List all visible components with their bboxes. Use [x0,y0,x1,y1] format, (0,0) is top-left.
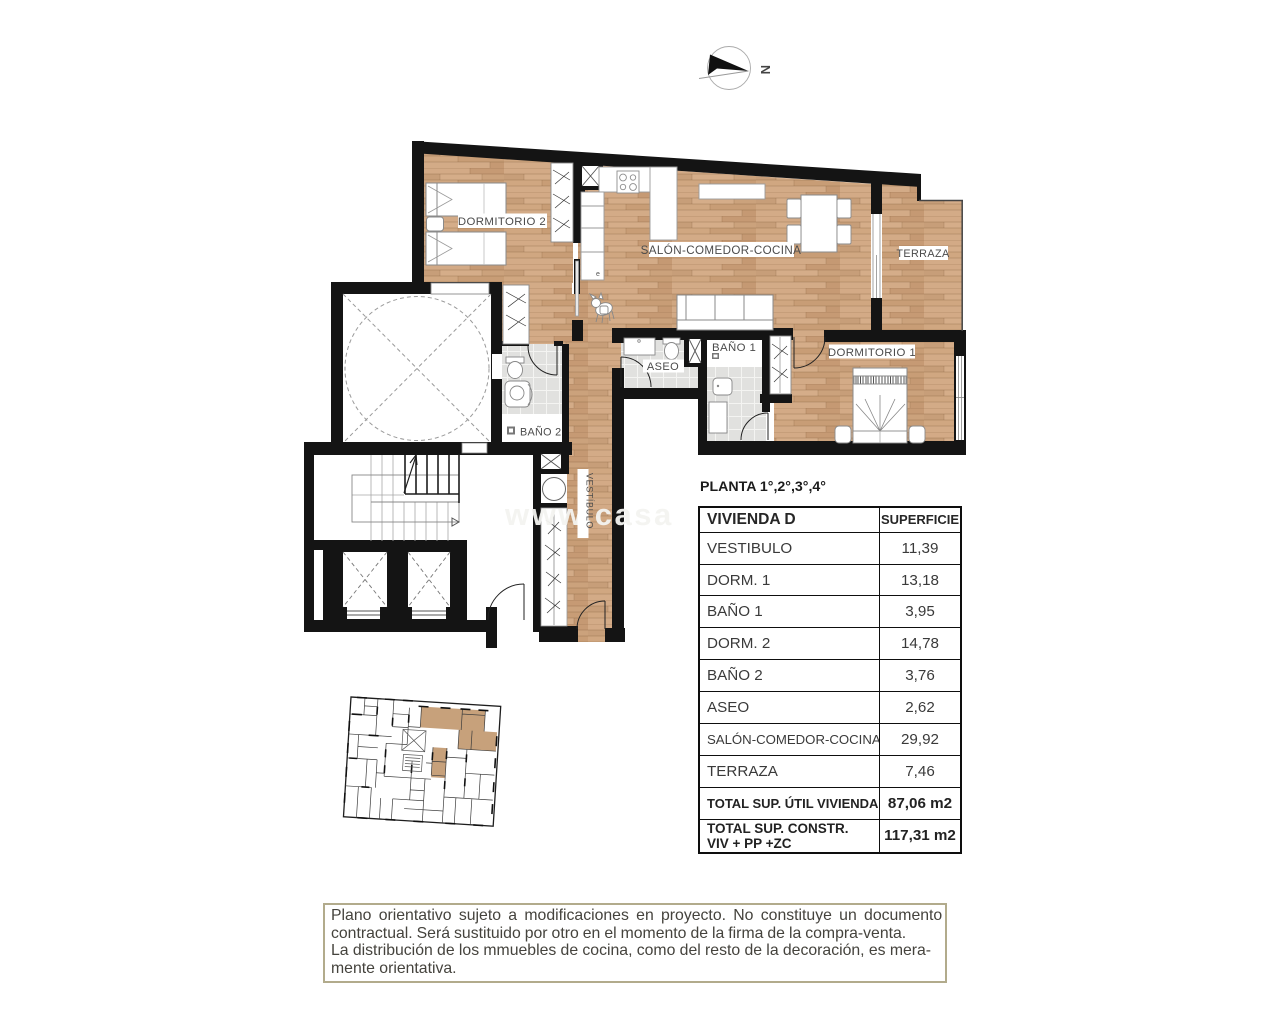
svg-text:VESTÍBULO: VESTÍBULO [585,473,595,529]
svg-text:e: e [596,271,600,278]
svg-text:SALÓN-COMEDOR-COCINA: SALÓN-COMEDOR-COCINA [641,244,802,257]
svg-text:BAÑO 1: BAÑO 1 [712,341,756,354]
svg-text:DORMITORIO 1: DORMITORIO 1 [828,347,916,359]
svg-text:N: N [758,65,773,74]
svg-text:BAÑO 2: BAÑO 2 [520,426,561,439]
svg-text:ASEO: ASEO [647,361,679,373]
svg-text:TERRAZA: TERRAZA [896,248,950,260]
svg-text:DORMITORIO 2: DORMITORIO 2 [458,216,546,228]
